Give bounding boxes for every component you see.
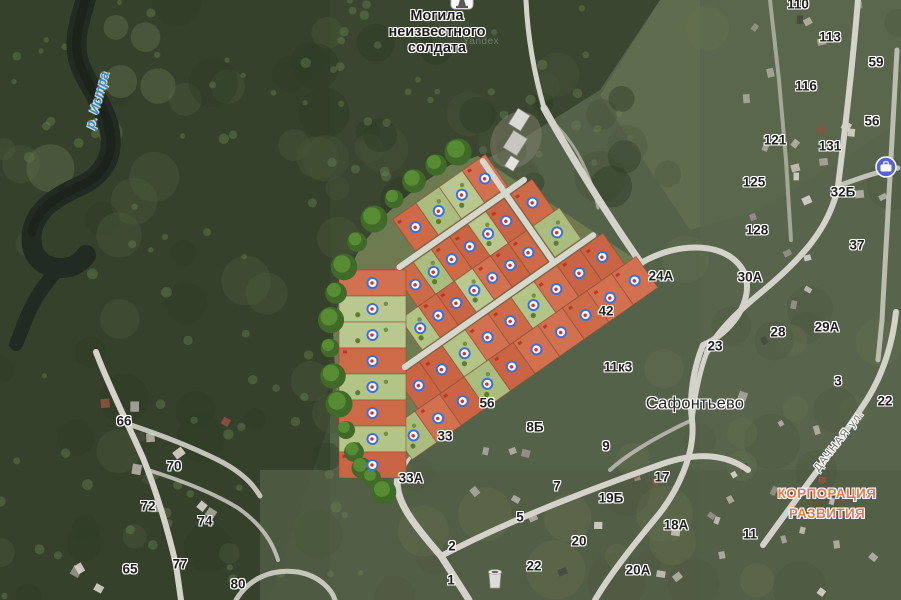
map-canvas[interactable]: 110113591165612113112532Б1283724А30А4229…	[0, 0, 901, 600]
plot-marker[interactable]	[368, 330, 378, 340]
plot-marker[interactable]	[368, 278, 378, 288]
satellite-layer	[0, 0, 901, 600]
plot-marker[interactable]	[368, 382, 378, 392]
map-watermark: Yandex	[463, 36, 499, 47]
business-poi-icon[interactable]	[876, 157, 896, 177]
monument-icon[interactable]	[451, 0, 473, 9]
plot-marker[interactable]	[368, 434, 378, 444]
plot-marker[interactable]	[368, 460, 378, 470]
trash-bin-icon[interactable]	[489, 570, 502, 588]
plot-marker[interactable]	[368, 304, 378, 314]
plot-marker[interactable]	[368, 356, 378, 366]
plot-marker[interactable]	[368, 408, 378, 418]
